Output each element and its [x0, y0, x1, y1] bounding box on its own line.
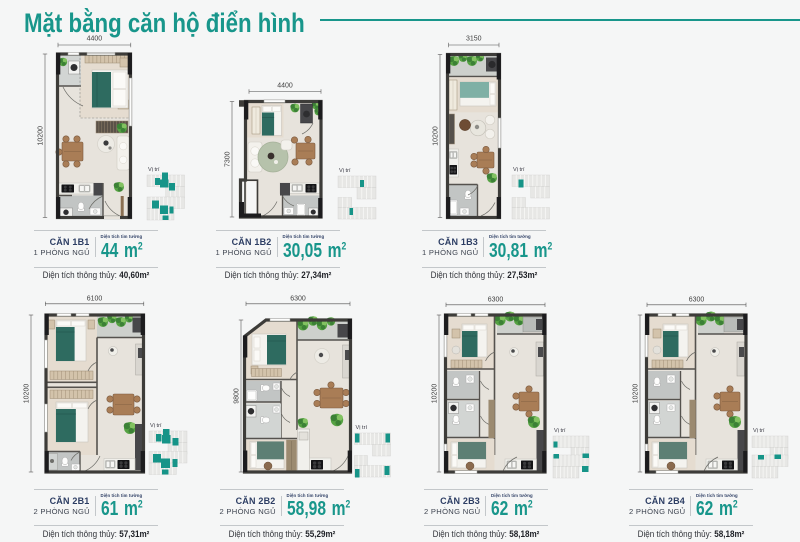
svg-text:6300: 6300 [290, 296, 306, 303]
svg-text:3150: 3150 [466, 36, 482, 43]
svg-text:Vị trí: Vị trí [339, 168, 351, 174]
svg-text:4400: 4400 [87, 36, 103, 43]
svg-text:6300: 6300 [689, 297, 705, 304]
svg-text:10200: 10200 [432, 384, 439, 404]
svg-text:Vị trí: Vị trí [554, 428, 566, 434]
svg-text:7300: 7300 [225, 151, 232, 167]
svg-text:9800: 9800 [234, 388, 241, 404]
svg-text:6100: 6100 [87, 296, 103, 303]
svg-text:10200: 10200 [24, 384, 31, 404]
svg-text:6300: 6300 [488, 297, 504, 304]
svg-text:10200: 10200 [38, 126, 45, 146]
svg-text:Vị trí: Vị trí [150, 423, 162, 429]
svg-text:Vị trí: Vị trí [148, 167, 160, 173]
svg-text:4400: 4400 [277, 83, 293, 90]
svg-text:Vị trí: Vị trí [356, 425, 368, 431]
svg-text:Vị trí: Vị trí [513, 167, 525, 173]
svg-text:Vị trí: Vị trí [753, 428, 765, 434]
svg-text:10200: 10200 [633, 384, 640, 404]
svg-text:10200: 10200 [433, 126, 440, 146]
